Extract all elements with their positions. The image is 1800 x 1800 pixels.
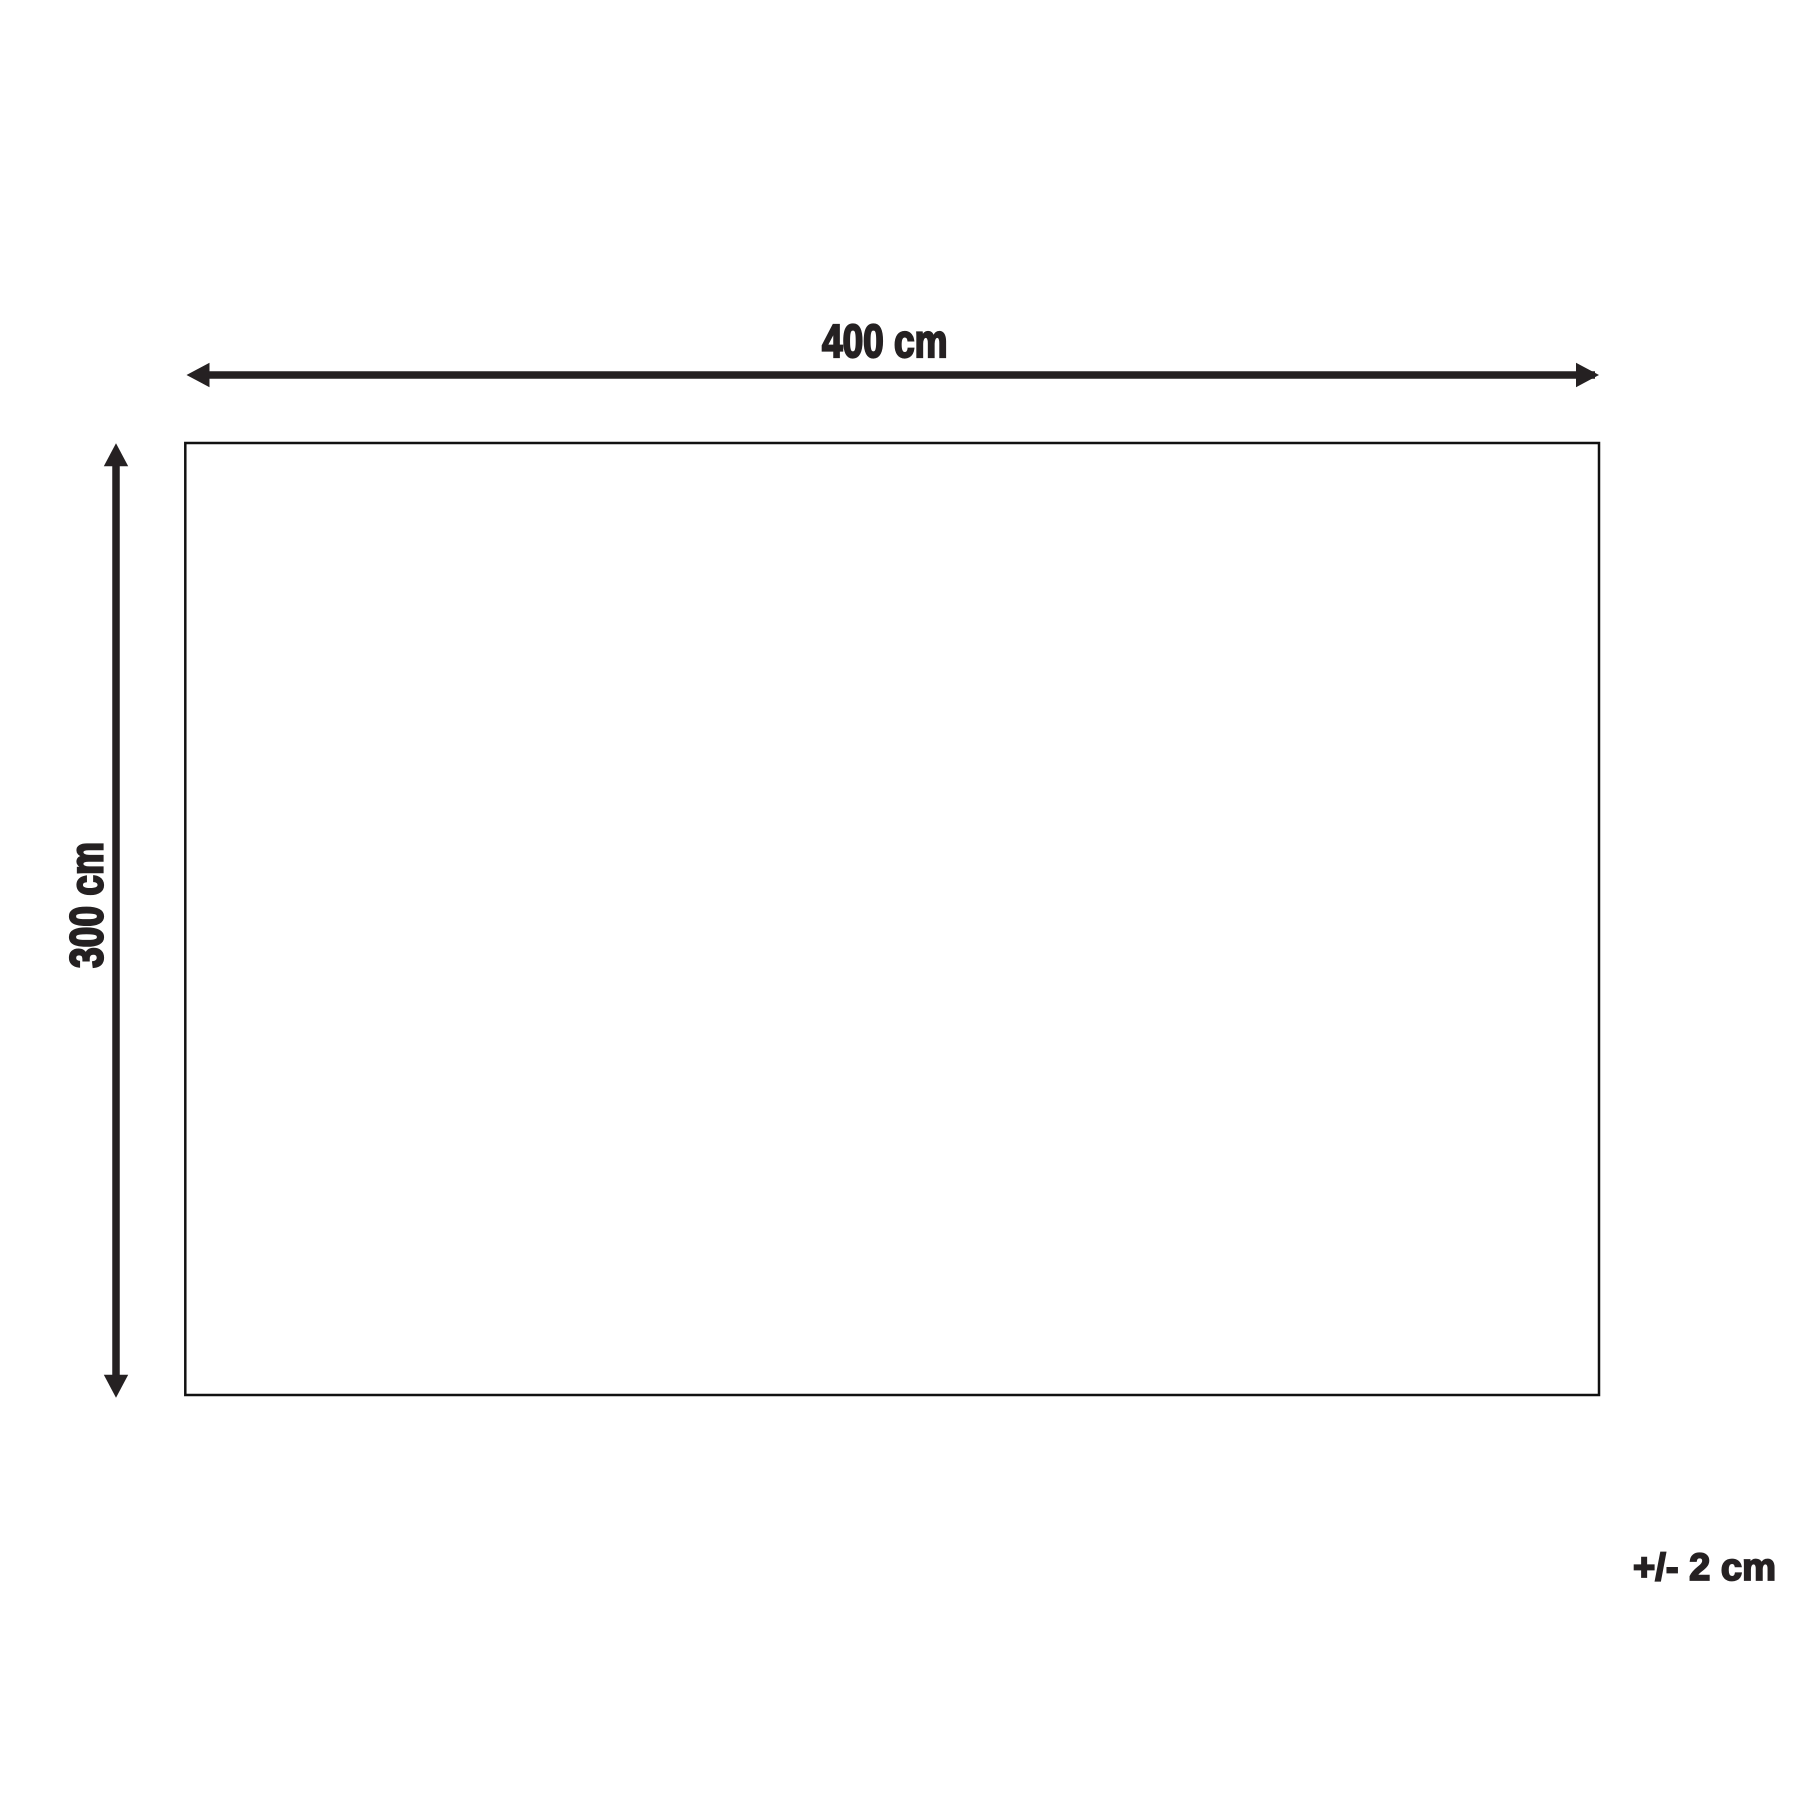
svg-text:300 cm: 300 cm — [61, 842, 113, 968]
svg-text:+/- 2 cm: +/- 2 cm — [1633, 1547, 1776, 1589]
svg-text:400 cm: 400 cm — [822, 315, 948, 367]
